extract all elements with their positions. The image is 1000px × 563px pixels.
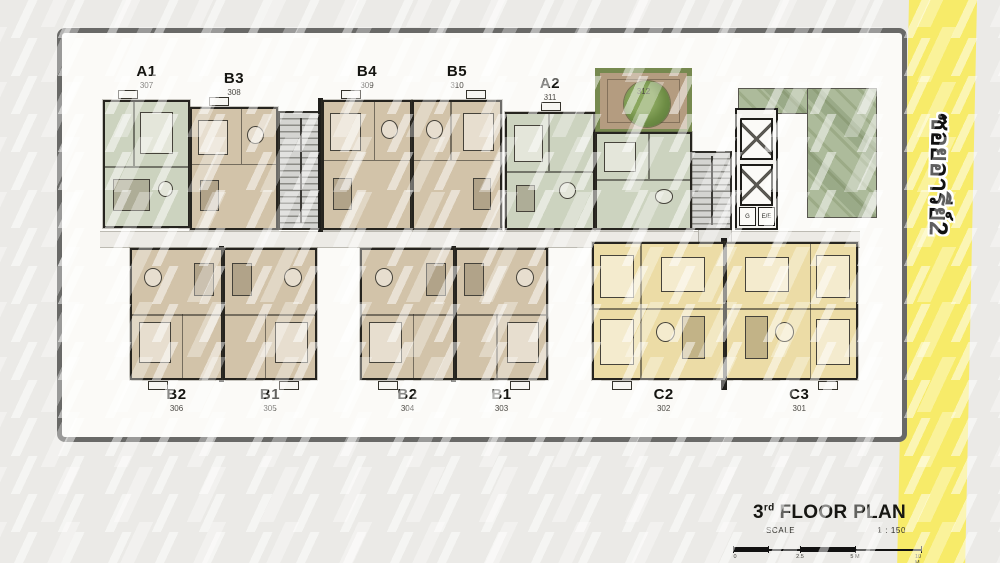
balcony: [612, 381, 632, 390]
bed: [198, 120, 228, 156]
scale-tick-label: 5 M: [850, 554, 859, 560]
unit-name: B4: [357, 64, 377, 79]
unit-number: 301: [789, 405, 809, 413]
bathtub: [194, 263, 214, 296]
unit-label: B2 304: [397, 387, 417, 413]
unit-number: 304: [397, 405, 417, 413]
bed: [330, 113, 361, 151]
partition: [548, 114, 550, 171]
partition: [648, 134, 650, 179]
bathtub: [200, 180, 218, 211]
table: [426, 120, 443, 139]
unit-name: B1: [491, 387, 511, 402]
floor-number: 3: [753, 502, 764, 523]
bathtub: [682, 316, 705, 359]
partition: [414, 160, 500, 162]
bathtub: [426, 263, 446, 296]
unit-name: B1: [260, 387, 280, 402]
balcony: [466, 90, 486, 99]
partition: [594, 308, 723, 310]
bed: [275, 322, 307, 363]
bed: [514, 125, 543, 161]
courtyard-312: 312: [595, 68, 692, 134]
floor-plan-text: FLOOR PLAN: [780, 502, 907, 523]
unit-C3-301: C3 301: [725, 242, 858, 380]
table: [284, 268, 302, 287]
unit-name: B3: [224, 71, 244, 86]
balcony: [378, 381, 398, 390]
unit-number: 309: [357, 82, 377, 90]
unit-C2-302: C2 302: [592, 242, 725, 380]
courtyard-number: 312: [637, 87, 650, 96]
scale-bar-segment: [733, 547, 768, 552]
partition: [496, 314, 498, 378]
partition: [450, 102, 452, 160]
balcony: [341, 90, 361, 99]
elevator-shaft-icon: [740, 118, 773, 160]
bathtub: [464, 263, 484, 296]
balcony: [209, 97, 229, 106]
unit-label: A1 307: [136, 64, 156, 90]
partition: [727, 308, 856, 310]
yellow-banner: ซอยอารีย์2: [897, 0, 978, 563]
partition: [810, 244, 812, 378]
unit-name: C3: [789, 387, 809, 402]
partition: [457, 314, 546, 316]
partition: [182, 314, 184, 378]
table: [247, 126, 264, 144]
unit-B2-306: B2 306: [130, 248, 223, 380]
bed: [369, 322, 402, 363]
unit-label: B1 305: [260, 387, 280, 413]
partition: [507, 171, 593, 173]
balcony: [818, 381, 838, 390]
elevator-shaft-icon: [740, 164, 773, 206]
unit-label: C3 301: [789, 387, 809, 413]
balcony: [510, 381, 530, 390]
stair-rail: [300, 118, 302, 224]
unit-B2-304: B2 304: [360, 248, 455, 380]
bed: [463, 113, 494, 151]
unit-label: B4 309: [357, 64, 377, 90]
dining-table: [745, 257, 789, 292]
screenshot-stage: ซอยอารีย์2 312 G E/E: [0, 0, 1000, 563]
sofa: [113, 179, 150, 211]
unit-number: 311: [540, 94, 560, 102]
partition: [265, 314, 267, 378]
partition: [324, 160, 410, 162]
floor-plan-sheet: 312 G E/E A1 307: [57, 28, 907, 442]
scale-tick-label: 2.5: [796, 554, 804, 560]
unit-label: B3 308: [224, 71, 244, 97]
partition: [241, 109, 243, 164]
scale-tick: [921, 546, 922, 553]
stair-rail: [711, 156, 713, 225]
roof-garden-side: [807, 88, 877, 218]
bathtub: [516, 185, 535, 212]
table: [656, 322, 675, 342]
bed: [139, 322, 171, 363]
bathtub: [232, 263, 252, 296]
partition: [413, 314, 415, 378]
title-block: 3rdFLOOR PLAN SCALE 1 : 150 0 2.5 5 M 10…: [700, 502, 924, 559]
unit-number: 303: [491, 405, 511, 413]
table: [775, 322, 794, 342]
scale-tick-label: 10 M: [915, 554, 921, 563]
unit-B1-303: B1 303: [455, 248, 548, 380]
scale-tick: [800, 546, 801, 553]
bed: [140, 112, 173, 154]
partition: [597, 179, 690, 181]
service-room: G: [739, 207, 756, 226]
partition: [192, 164, 276, 166]
stairwell-west: [278, 111, 322, 230]
unit-number: 302: [654, 405, 674, 413]
unit-label: A2 311: [540, 76, 560, 102]
scale-row: SCALE 1 : 150: [700, 526, 924, 535]
balcony: [118, 90, 138, 99]
unit-name: B2: [166, 387, 186, 402]
unit-name: C2: [654, 387, 674, 402]
table: [144, 268, 162, 287]
partition: [640, 244, 642, 378]
table: [559, 182, 576, 199]
unit-label: B1 303: [491, 387, 511, 413]
unit-312-rooms: [595, 132, 692, 230]
unit-number: 310: [447, 82, 467, 90]
scale-bar-segment: [800, 547, 855, 552]
partition: [225, 314, 315, 316]
bed: [507, 322, 539, 363]
bed: [604, 142, 636, 172]
bed: [600, 319, 634, 365]
partition: [132, 314, 221, 316]
scale-value: 1 : 150: [877, 526, 906, 535]
bathtub: [745, 316, 768, 359]
scale-tick-label: 0: [733, 554, 736, 560]
electrical-room: E/E: [758, 207, 775, 226]
unit-name: B2: [397, 387, 417, 402]
balcony: [541, 102, 561, 111]
elevator-block: G E/E: [735, 108, 778, 230]
scale-bar: 0 2.5 5 M 10 M: [733, 545, 922, 559]
scale-label: SCALE: [766, 526, 795, 535]
unit-number: 306: [166, 405, 186, 413]
table: [158, 181, 173, 197]
balcony: [279, 381, 299, 390]
unit-number: 308: [224, 89, 244, 97]
unit-B4-309: B4 309: [322, 100, 412, 230]
partition: [374, 102, 376, 160]
scale-tick: [768, 546, 769, 553]
partition: [105, 166, 188, 168]
banner-text: ซอยอารีย์2: [918, 113, 962, 236]
unit-A1-307: A1 307: [103, 100, 190, 228]
bed: [816, 255, 850, 298]
unit-B1-305: B1 305: [223, 248, 317, 380]
table: [516, 268, 534, 287]
unit-A2-311: A2 311: [505, 112, 595, 230]
page-title: 3rdFLOOR PLAN: [700, 502, 924, 524]
bathtub: [333, 178, 352, 211]
table: [375, 268, 393, 287]
bathtub: [473, 178, 492, 211]
scale-tick: [733, 546, 734, 553]
balcony: [148, 381, 168, 390]
scale-tick: [855, 546, 856, 553]
unit-label: C2 302: [654, 387, 674, 413]
bed: [600, 255, 634, 298]
partition: [362, 314, 453, 316]
table: [655, 189, 674, 204]
unit-number: 307: [136, 82, 156, 90]
unit-name: A2: [540, 76, 560, 91]
floor-ordinal: rd: [764, 503, 775, 514]
unit-B3-308: B3 308: [190, 107, 278, 230]
dining-table: [661, 257, 705, 292]
table: [381, 120, 398, 139]
bed: [816, 319, 850, 365]
unit-name: A1: [136, 64, 156, 79]
unit-label: B5 310: [447, 64, 467, 90]
partition: [133, 102, 135, 166]
unit-name: B5: [447, 64, 467, 79]
unit-number: 305: [260, 405, 280, 413]
unit-B5-310: B5 310: [412, 100, 502, 230]
stairwell-east: [690, 151, 732, 230]
unit-label: B2 306: [166, 387, 186, 413]
